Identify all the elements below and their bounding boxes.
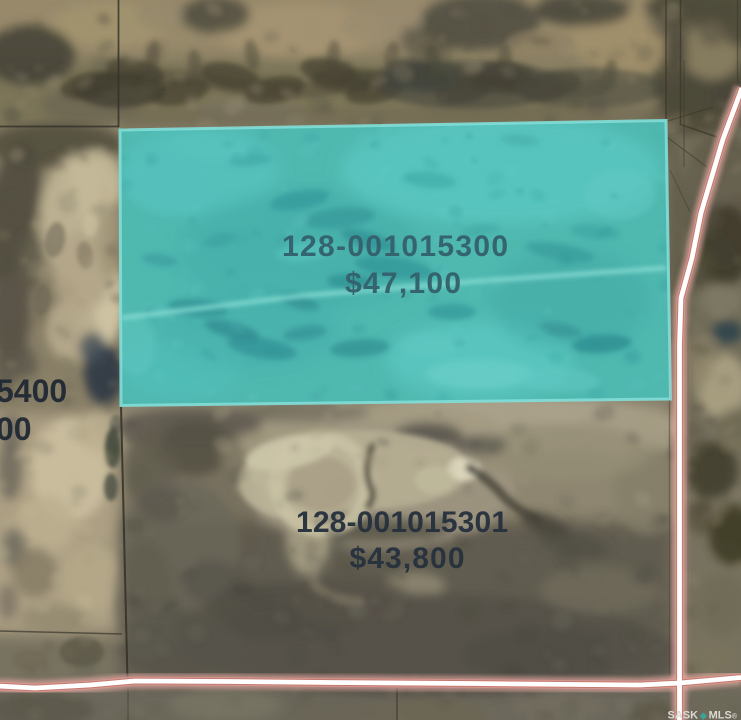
svg-text:00: 00 (0, 411, 32, 447)
svg-text:$43,800: $43,800 (350, 542, 465, 575)
svg-text:$47,100: $47,100 (345, 267, 461, 300)
svg-text:5400: 5400 (0, 373, 67, 409)
svg-text:128-001015301: 128-001015301 (296, 506, 508, 539)
svg-text:SASK ◆ MLS®: SASK ◆ MLS® (668, 710, 738, 721)
svg-text:128-001015300: 128-001015300 (282, 230, 508, 263)
